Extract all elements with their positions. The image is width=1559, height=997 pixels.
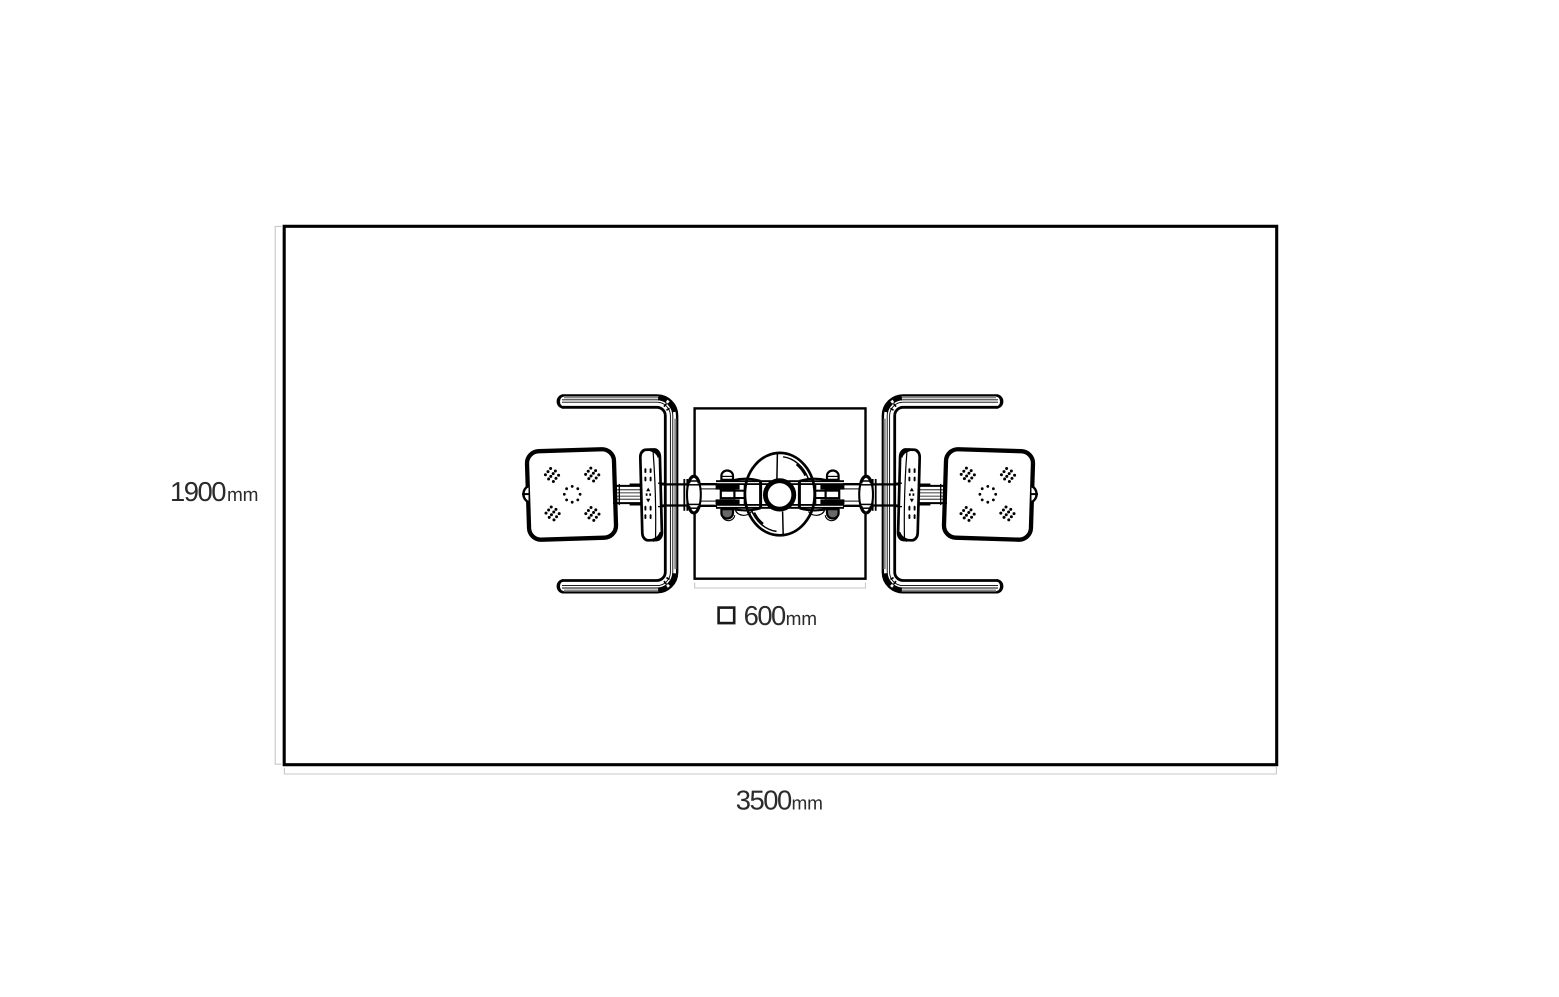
svg-text:mm: mm xyxy=(227,485,258,506)
svg-text:mm: mm xyxy=(786,609,817,630)
svg-text:600: 600 xyxy=(744,600,786,631)
svg-text:1900: 1900 xyxy=(170,476,226,507)
svg-text:mm: mm xyxy=(792,794,823,815)
svg-text:3500: 3500 xyxy=(736,785,792,816)
